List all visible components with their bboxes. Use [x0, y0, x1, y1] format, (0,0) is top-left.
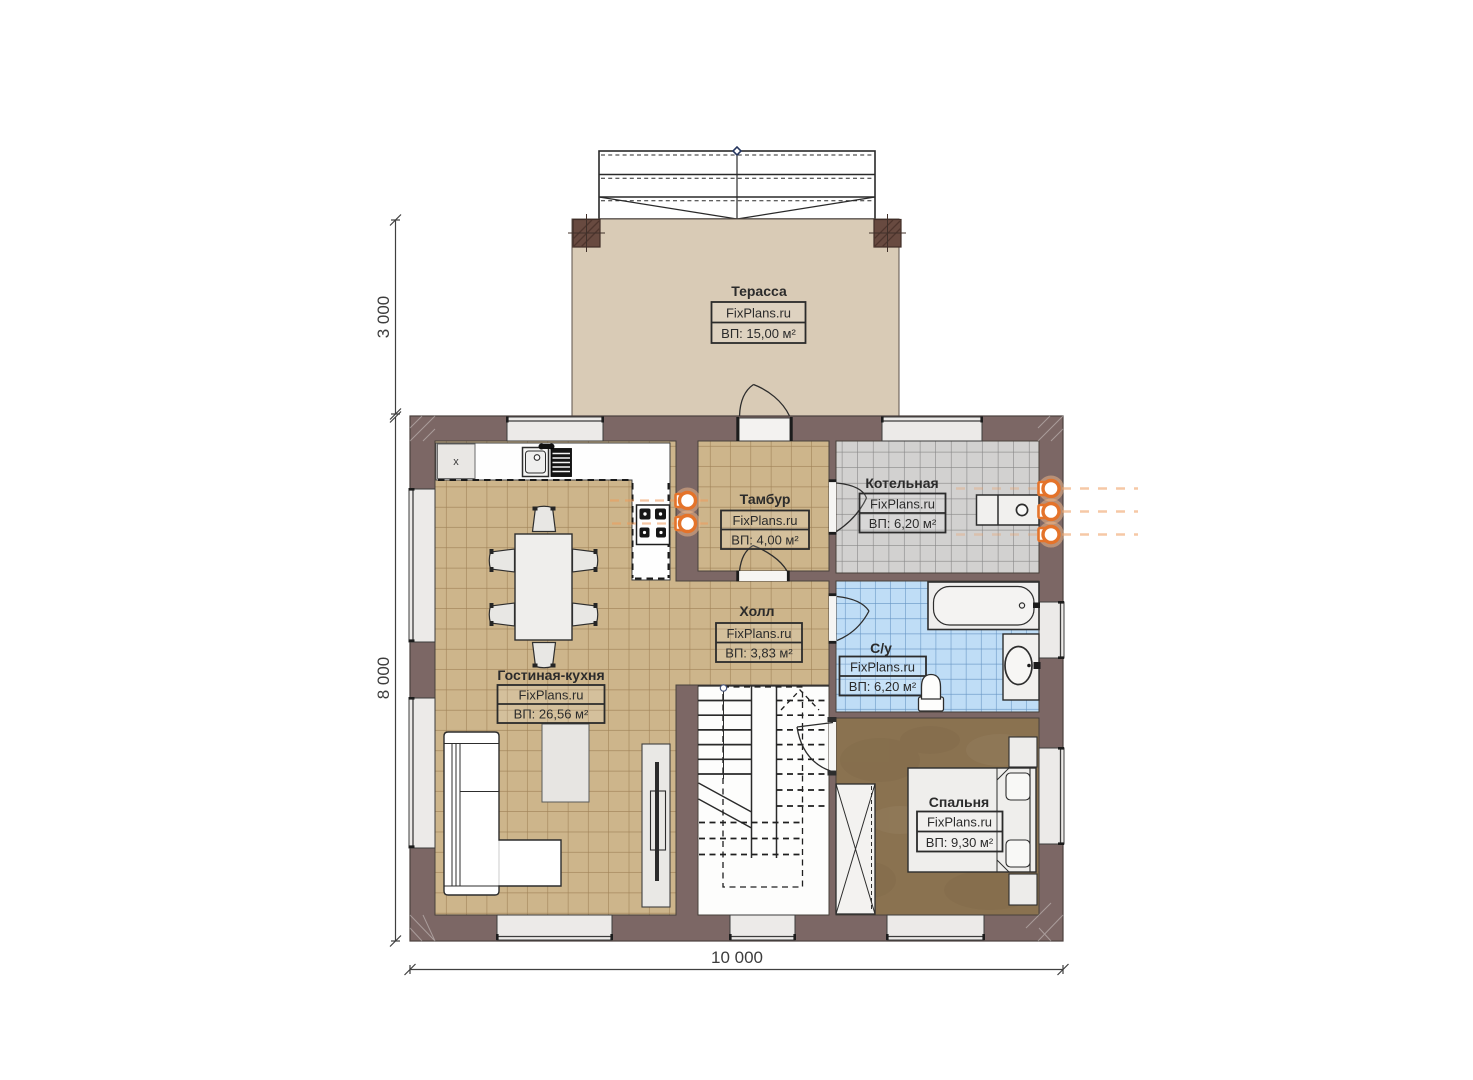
- svg-text:Гостиная-кухня: Гостиная-кухня: [497, 667, 604, 683]
- svg-text:x: x: [453, 456, 459, 468]
- svg-text:ВП: 26,56 м²: ВП: 26,56 м²: [514, 707, 589, 722]
- svg-text:ВП: 3,83 м²: ВП: 3,83 м²: [725, 646, 793, 661]
- svg-text:ВП: 6,20 м²: ВП: 6,20 м²: [869, 516, 937, 531]
- svg-text:FixPlans.ru: FixPlans.ru: [870, 497, 935, 512]
- svg-text:Терасса: Терасса: [731, 283, 787, 299]
- svg-text:ВП: 6,20 м²: ВП: 6,20 м²: [849, 679, 917, 694]
- svg-text:FixPlans.ru: FixPlans.ru: [518, 688, 583, 703]
- svg-text:10 000: 10 000: [711, 948, 763, 967]
- svg-text:Холл: Холл: [739, 603, 774, 619]
- svg-text:Спальня: Спальня: [929, 794, 989, 810]
- svg-text:Тамбур: Тамбур: [740, 491, 791, 507]
- svg-text:3 000: 3 000: [374, 296, 393, 339]
- svg-text:FixPlans.ru: FixPlans.ru: [732, 513, 797, 528]
- svg-text:ВП: 15,00 м²: ВП: 15,00 м²: [721, 326, 796, 341]
- svg-text:ВП: 4,00 м²: ВП: 4,00 м²: [731, 533, 799, 548]
- svg-text:FixPlans.ru: FixPlans.ru: [927, 815, 992, 830]
- svg-text:FixPlans.ru: FixPlans.ru: [726, 306, 791, 321]
- svg-text:Котельная: Котельная: [865, 475, 938, 491]
- svg-text:FixPlans.ru: FixPlans.ru: [726, 626, 791, 641]
- svg-text:ВП: 9,30 м²: ВП: 9,30 м²: [926, 835, 994, 850]
- svg-text:8 000: 8 000: [374, 657, 393, 700]
- svg-text:FixPlans.ru: FixPlans.ru: [850, 660, 915, 675]
- svg-text:С/у: С/у: [870, 640, 892, 656]
